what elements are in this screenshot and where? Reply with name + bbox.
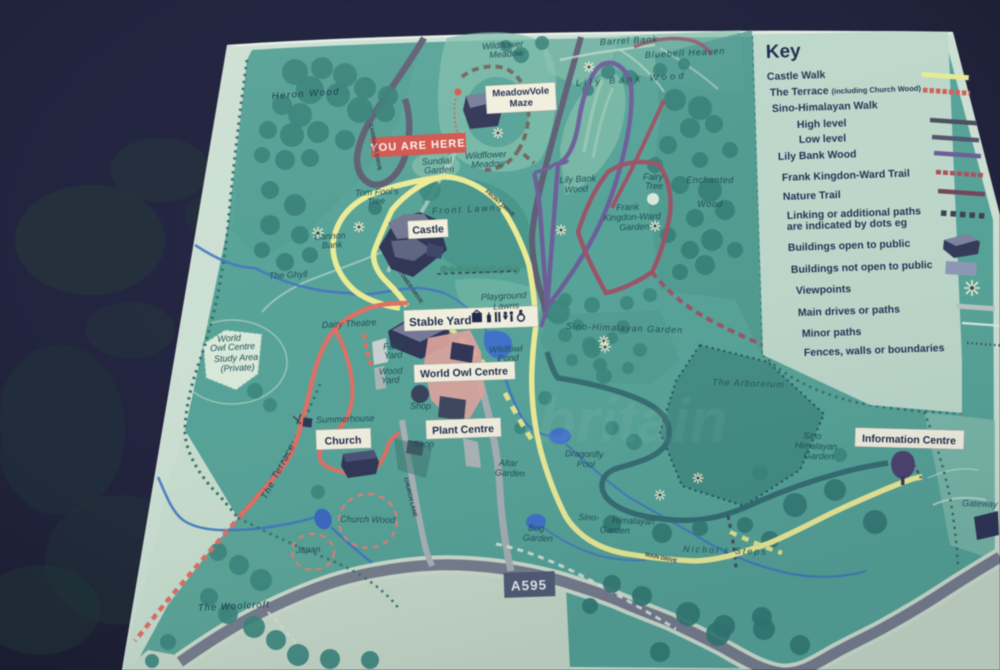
- svg-text:Bog: Bog: [528, 523, 544, 534]
- svg-text:Altar: Altar: [498, 458, 519, 469]
- svg-text:Shop: Shop: [410, 401, 431, 411]
- svg-text:Pool: Pool: [577, 459, 596, 470]
- svg-text:Garden: Garden: [804, 451, 834, 462]
- svg-text:Garden: Garden: [424, 164, 455, 176]
- svg-text:Wood: Wood: [564, 183, 589, 194]
- svg-text:Gateway: Gateway: [962, 498, 998, 509]
- svg-text:Sino-: Sino-: [578, 512, 599, 523]
- svg-text:Yard: Yard: [384, 350, 404, 361]
- svg-text:Yard: Yard: [381, 375, 401, 386]
- svg-text:Pond: Pond: [497, 353, 519, 364]
- svg-text:Shop: Shop: [413, 439, 434, 449]
- svg-text:Garden: Garden: [523, 533, 553, 544]
- svg-text:Japan: Japan: [295, 544, 321, 555]
- svg-text:Himalayan: Himalayan: [795, 440, 838, 451]
- svg-text:The Ghyll: The Ghyll: [269, 269, 309, 281]
- svg-text:Meadow: Meadow: [471, 158, 506, 170]
- svg-text:Garden: Garden: [619, 221, 649, 232]
- svg-text:Tree: Tree: [645, 181, 663, 191]
- svg-text:Dragonfly: Dragonfly: [565, 448, 604, 459]
- svg-text:Summerhouse: Summerhouse: [316, 413, 375, 425]
- svg-text:britain: britain: [538, 387, 727, 456]
- svg-text:Wood: Wood: [697, 199, 723, 209]
- svg-text:Garden: Garden: [600, 525, 630, 536]
- svg-text:(Private): (Private): [220, 362, 254, 374]
- svg-text:Tree: Tree: [367, 196, 385, 207]
- svg-text:Lawns: Lawns: [493, 300, 520, 311]
- svg-text:Enchanted: Enchanted: [686, 175, 734, 185]
- svg-text:Church Wood: Church Wood: [340, 514, 396, 525]
- svg-text:Sino: Sino: [803, 430, 821, 441]
- svg-text:Bank: Bank: [322, 239, 344, 250]
- svg-text:Garden: Garden: [495, 468, 525, 479]
